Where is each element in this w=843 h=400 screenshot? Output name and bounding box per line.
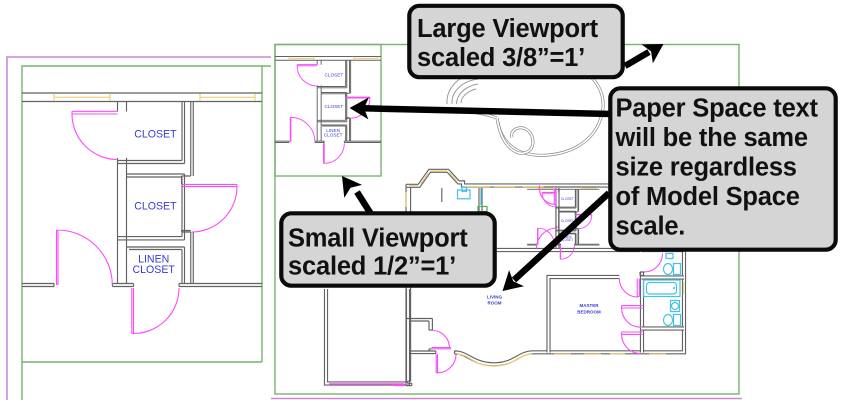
svg-text:BEDROOM: BEDROOM — [577, 310, 601, 315]
svg-text:Small Viewport: Small Viewport — [288, 225, 468, 253]
svg-text:will be the same: will be the same — [615, 124, 808, 152]
svg-text:size regardless: size regardless — [616, 154, 797, 182]
svg-text:scale.: scale. — [616, 213, 686, 241]
svg-text:LIVING: LIVING — [487, 295, 503, 300]
svg-text:Large Viewport: Large Viewport — [417, 15, 599, 43]
svg-text:Paper Space text: Paper Space text — [616, 95, 819, 123]
svg-text:of Model Space: of Model Space — [616, 183, 800, 211]
svg-text:ROOM: ROOM — [488, 301, 502, 306]
svg-text:scaled 3/8”=1’: scaled 3/8”=1’ — [417, 44, 585, 72]
svg-text:scaled 1/2”=1’: scaled 1/2”=1’ — [288, 253, 456, 281]
svg-text:MASTER: MASTER — [580, 303, 600, 308]
